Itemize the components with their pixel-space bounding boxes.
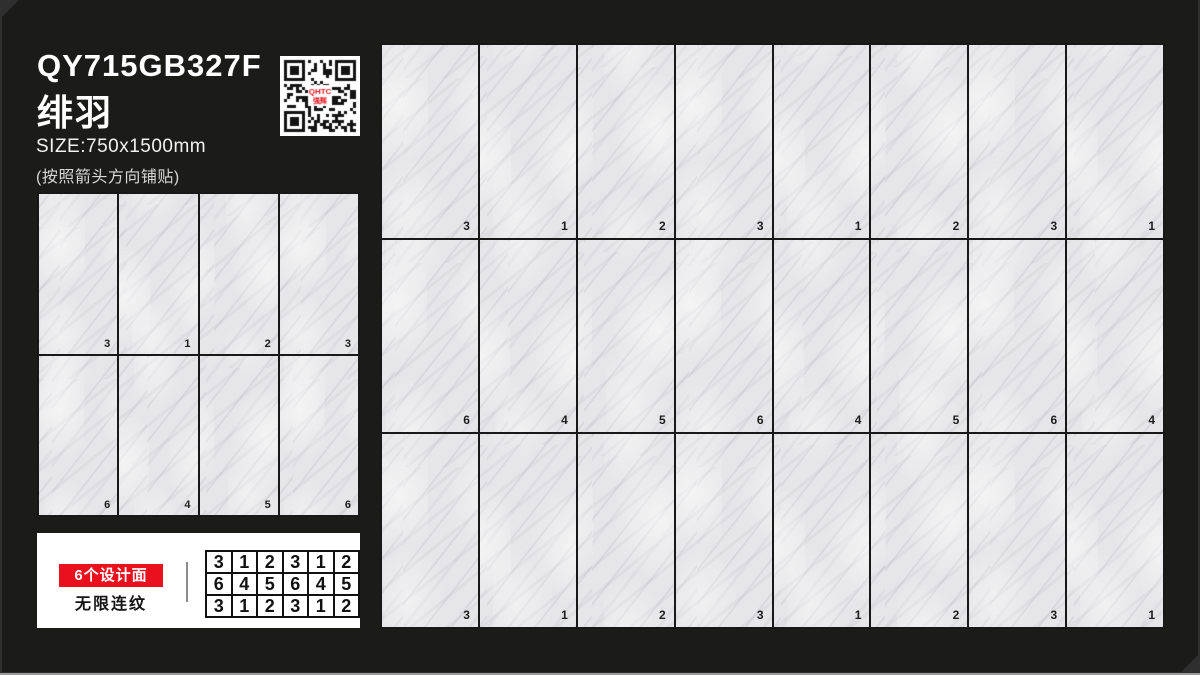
pattern-cell: 6: [206, 573, 232, 595]
marble-tile: 3: [382, 45, 478, 238]
tile-design-number: 2: [953, 219, 960, 233]
layout-tile-grid: 312312316456456431231231: [380, 43, 1165, 629]
tile-design-number: 1: [855, 608, 862, 622]
size-label: SIZE:750x1500mm: [36, 136, 206, 158]
marble-tile: 4: [774, 240, 870, 433]
marble-tile: 3: [382, 434, 478, 627]
qr-code: [280, 56, 360, 136]
layout-direction-note: (按照箭头方向铺贴): [36, 163, 180, 187]
pattern-cell: 1: [308, 551, 334, 573]
pattern-cell: 1: [232, 551, 258, 573]
tile-design-number: 1: [184, 338, 190, 350]
poster-frame: QY715GB327F 绯羽 SIZE:750x1500mm (按照箭头方向铺贴…: [0, 0, 1200, 675]
marble-tile: 4: [119, 356, 197, 516]
tile-design-number: 3: [1050, 219, 1057, 233]
pattern-cell: 4: [308, 573, 334, 595]
tile-design-number: 4: [561, 413, 568, 427]
tile-design-number: 1: [561, 219, 568, 233]
marble-tile: 6: [969, 240, 1065, 433]
vertical-divider: [186, 562, 188, 602]
marble-tile: 4: [1067, 240, 1163, 433]
marble-tile: 2: [578, 45, 674, 238]
pattern-cell: 2: [334, 595, 360, 617]
seamless-pattern-label: 无限连纹: [59, 590, 163, 614]
pattern-sequence-table: 312312645645312312: [205, 550, 360, 618]
tile-design-number: 3: [104, 338, 110, 350]
tile-design-number: 2: [659, 608, 666, 622]
tile-design-number: 5: [953, 413, 960, 427]
tile-design-number: 4: [855, 413, 862, 427]
tile-design-number: 6: [757, 413, 764, 427]
marble-tile: 2: [871, 434, 967, 627]
tile-design-number: 1: [1148, 219, 1155, 233]
tile-design-number: 1: [855, 219, 862, 233]
pattern-cell: 5: [334, 573, 360, 595]
tile-design-number: 1: [561, 608, 568, 622]
marble-tile: 1: [774, 434, 870, 627]
marble-tile: 6: [39, 356, 117, 516]
product-code: QY715GB327F: [37, 48, 262, 84]
tile-design-number: 3: [345, 338, 351, 350]
marble-tile: 1: [480, 45, 576, 238]
marble-tile: 1: [480, 434, 576, 627]
pattern-cell: 3: [206, 551, 232, 573]
design-count-badge: 6个设计面: [59, 564, 163, 587]
product-name: 绯羽: [37, 84, 113, 136]
pattern-cell: 3: [283, 551, 309, 573]
poster-panel: QY715GB327F 绯羽 SIZE:750x1500mm (按照箭头方向铺贴…: [2, 0, 1198, 672]
tile-design-number: 3: [463, 608, 470, 622]
info-box: 6个设计面 无限连纹 312312645645312312: [37, 533, 360, 628]
tile-design-number: 3: [757, 608, 764, 622]
tile-design-number: 3: [463, 219, 470, 233]
pattern-cell: 2: [334, 551, 360, 573]
marble-tile: 1: [1067, 45, 1163, 238]
tile-design-number: 3: [757, 219, 764, 233]
tile-design-number: 2: [265, 338, 271, 350]
marble-tile: 1: [774, 45, 870, 238]
tile-design-number: 6: [463, 413, 470, 427]
tile-design-number: 6: [1050, 413, 1057, 427]
pattern-cell: 3: [206, 595, 232, 617]
marble-tile: 6: [676, 240, 772, 433]
marble-tile: 5: [200, 356, 278, 516]
pattern-cell: 4: [232, 573, 258, 595]
pattern-cell: 5: [257, 573, 283, 595]
marble-tile: 2: [871, 45, 967, 238]
tile-design-number: 5: [659, 413, 666, 427]
marble-tile: 2: [200, 194, 278, 354]
marble-tile: 1: [1067, 434, 1163, 627]
pattern-cell: 1: [232, 595, 258, 617]
marble-tile: 6: [382, 240, 478, 433]
marble-tile: 3: [280, 194, 358, 354]
marble-tile: 3: [969, 45, 1065, 238]
marble-tile: 3: [39, 194, 117, 354]
pattern-cell: 1: [308, 595, 334, 617]
marble-tile: 5: [871, 240, 967, 433]
preview-tile-grid: 31236456: [37, 192, 360, 517]
tile-design-number: 5: [265, 499, 271, 511]
tile-design-number: 6: [104, 499, 110, 511]
tile-design-number: 1: [1148, 608, 1155, 622]
tile-design-number: 2: [659, 219, 666, 233]
tile-design-number: 4: [184, 499, 190, 511]
pattern-cell: 6: [283, 573, 309, 595]
marble-tile: 3: [676, 434, 772, 627]
pattern-cell: 2: [257, 551, 283, 573]
marble-tile: 2: [578, 434, 674, 627]
marble-tile: 5: [578, 240, 674, 433]
pattern-cell: 2: [257, 595, 283, 617]
marble-tile: 4: [480, 240, 576, 433]
marble-tile: 3: [676, 45, 772, 238]
marble-tile: 1: [119, 194, 197, 354]
tile-design-number: 6: [345, 499, 351, 511]
pattern-cell: 3: [283, 595, 309, 617]
tile-design-number: 4: [1148, 413, 1155, 427]
tile-design-number: 2: [953, 608, 960, 622]
marble-tile: 6: [280, 356, 358, 516]
tile-design-number: 3: [1050, 608, 1057, 622]
marble-tile: 3: [969, 434, 1065, 627]
